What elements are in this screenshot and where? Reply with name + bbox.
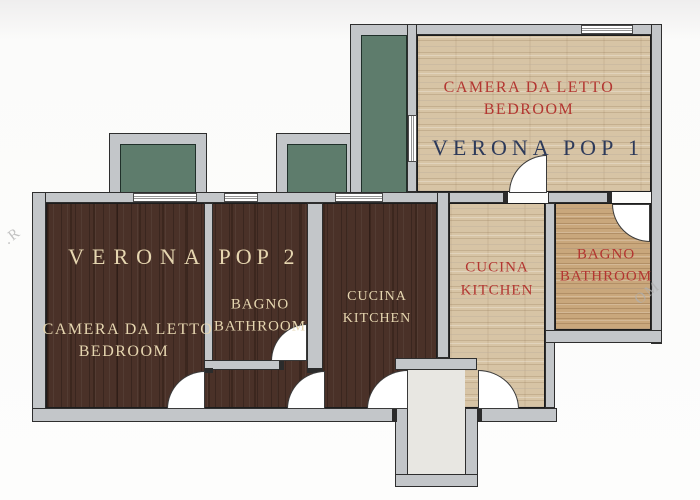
pop2-bedroom-label-en: BEDROOM: [79, 344, 170, 360]
wall-pop1-bedroom-left: [407, 24, 417, 192]
balcony-terrace-left: [120, 144, 196, 194]
window-pop1-bedroom-top: [581, 25, 633, 34]
wall-kitchen-pop1-bottom: [477, 408, 557, 422]
window-pop2-bathroom: [224, 193, 258, 202]
wall-kitchen-bathroom-pop1: [545, 203, 555, 408]
balcony-terrace-tall: [361, 35, 407, 194]
door-jamb: [607, 192, 612, 203]
pop1-bathroom-label-en: BATHROOM: [560, 270, 652, 285]
entrance-corridor-floor: [408, 369, 465, 474]
pop1-apartment-name: VERONA POP 1: [432, 137, 644, 159]
wall-pop1-bedroom-bottom-b: [548, 192, 612, 203]
pop2-name-part1: VERONA: [68, 246, 208, 268]
wall-bedroom-bathroom: [204, 203, 213, 372]
window-pop2-kitchen: [335, 193, 383, 202]
wall-bottom-exterior: [32, 408, 397, 422]
floor-plan: VERONA CAMERA DA LETTO BEDROOM POP 2 BAG…: [0, 0, 700, 500]
pop2-name-part2: POP 2: [218, 246, 299, 268]
window-pop2-bedroom: [133, 193, 197, 202]
watermark-left-fragment: .R: [1, 224, 25, 248]
pop1-kitchen-label-en: KITCHEN: [461, 284, 534, 299]
pop2-kitchen-label-it: CUCINA: [347, 290, 407, 304]
wall-bathroom-bottom: [204, 360, 284, 370]
wall-apartment-divide: [437, 192, 449, 358]
pop1-bedroom-label-it: CAMERA DA LETTO: [444, 80, 615, 96]
wall-left-exterior: [32, 192, 46, 422]
pop2-bathroom-label-en: BATHROOM: [214, 320, 306, 335]
wall-vestibule-top: [395, 358, 477, 370]
wall-pop1-bedroom-bottom-a: [449, 192, 508, 203]
pop1-kitchen-label-it: CUCINA: [465, 261, 529, 276]
window-pop1-bedroom-side: [408, 115, 417, 162]
pop1-bathroom-label-it: BAGNO: [577, 248, 635, 263]
door-jamb: [477, 408, 482, 422]
pop1-bedroom-label-en: BEDROOM: [484, 102, 575, 118]
door-jamb: [204, 368, 213, 373]
pop2-bedroom-label-it: CAMERA DA LETTO: [43, 322, 214, 338]
wall-bathroom-kitchen: [307, 203, 323, 372]
wall-bathroom-pop1-bottom: [545, 330, 662, 343]
pop2-kitchen-label-en: KITCHEN: [343, 312, 411, 326]
door-jamb: [503, 192, 508, 203]
pop2-bathroom-label-it: BAGNO: [231, 298, 289, 313]
wall-corridor-bottom: [395, 474, 478, 487]
balcony-terrace-middle: [287, 144, 347, 194]
door-jamb: [279, 360, 284, 370]
door-jamb: [392, 408, 397, 422]
